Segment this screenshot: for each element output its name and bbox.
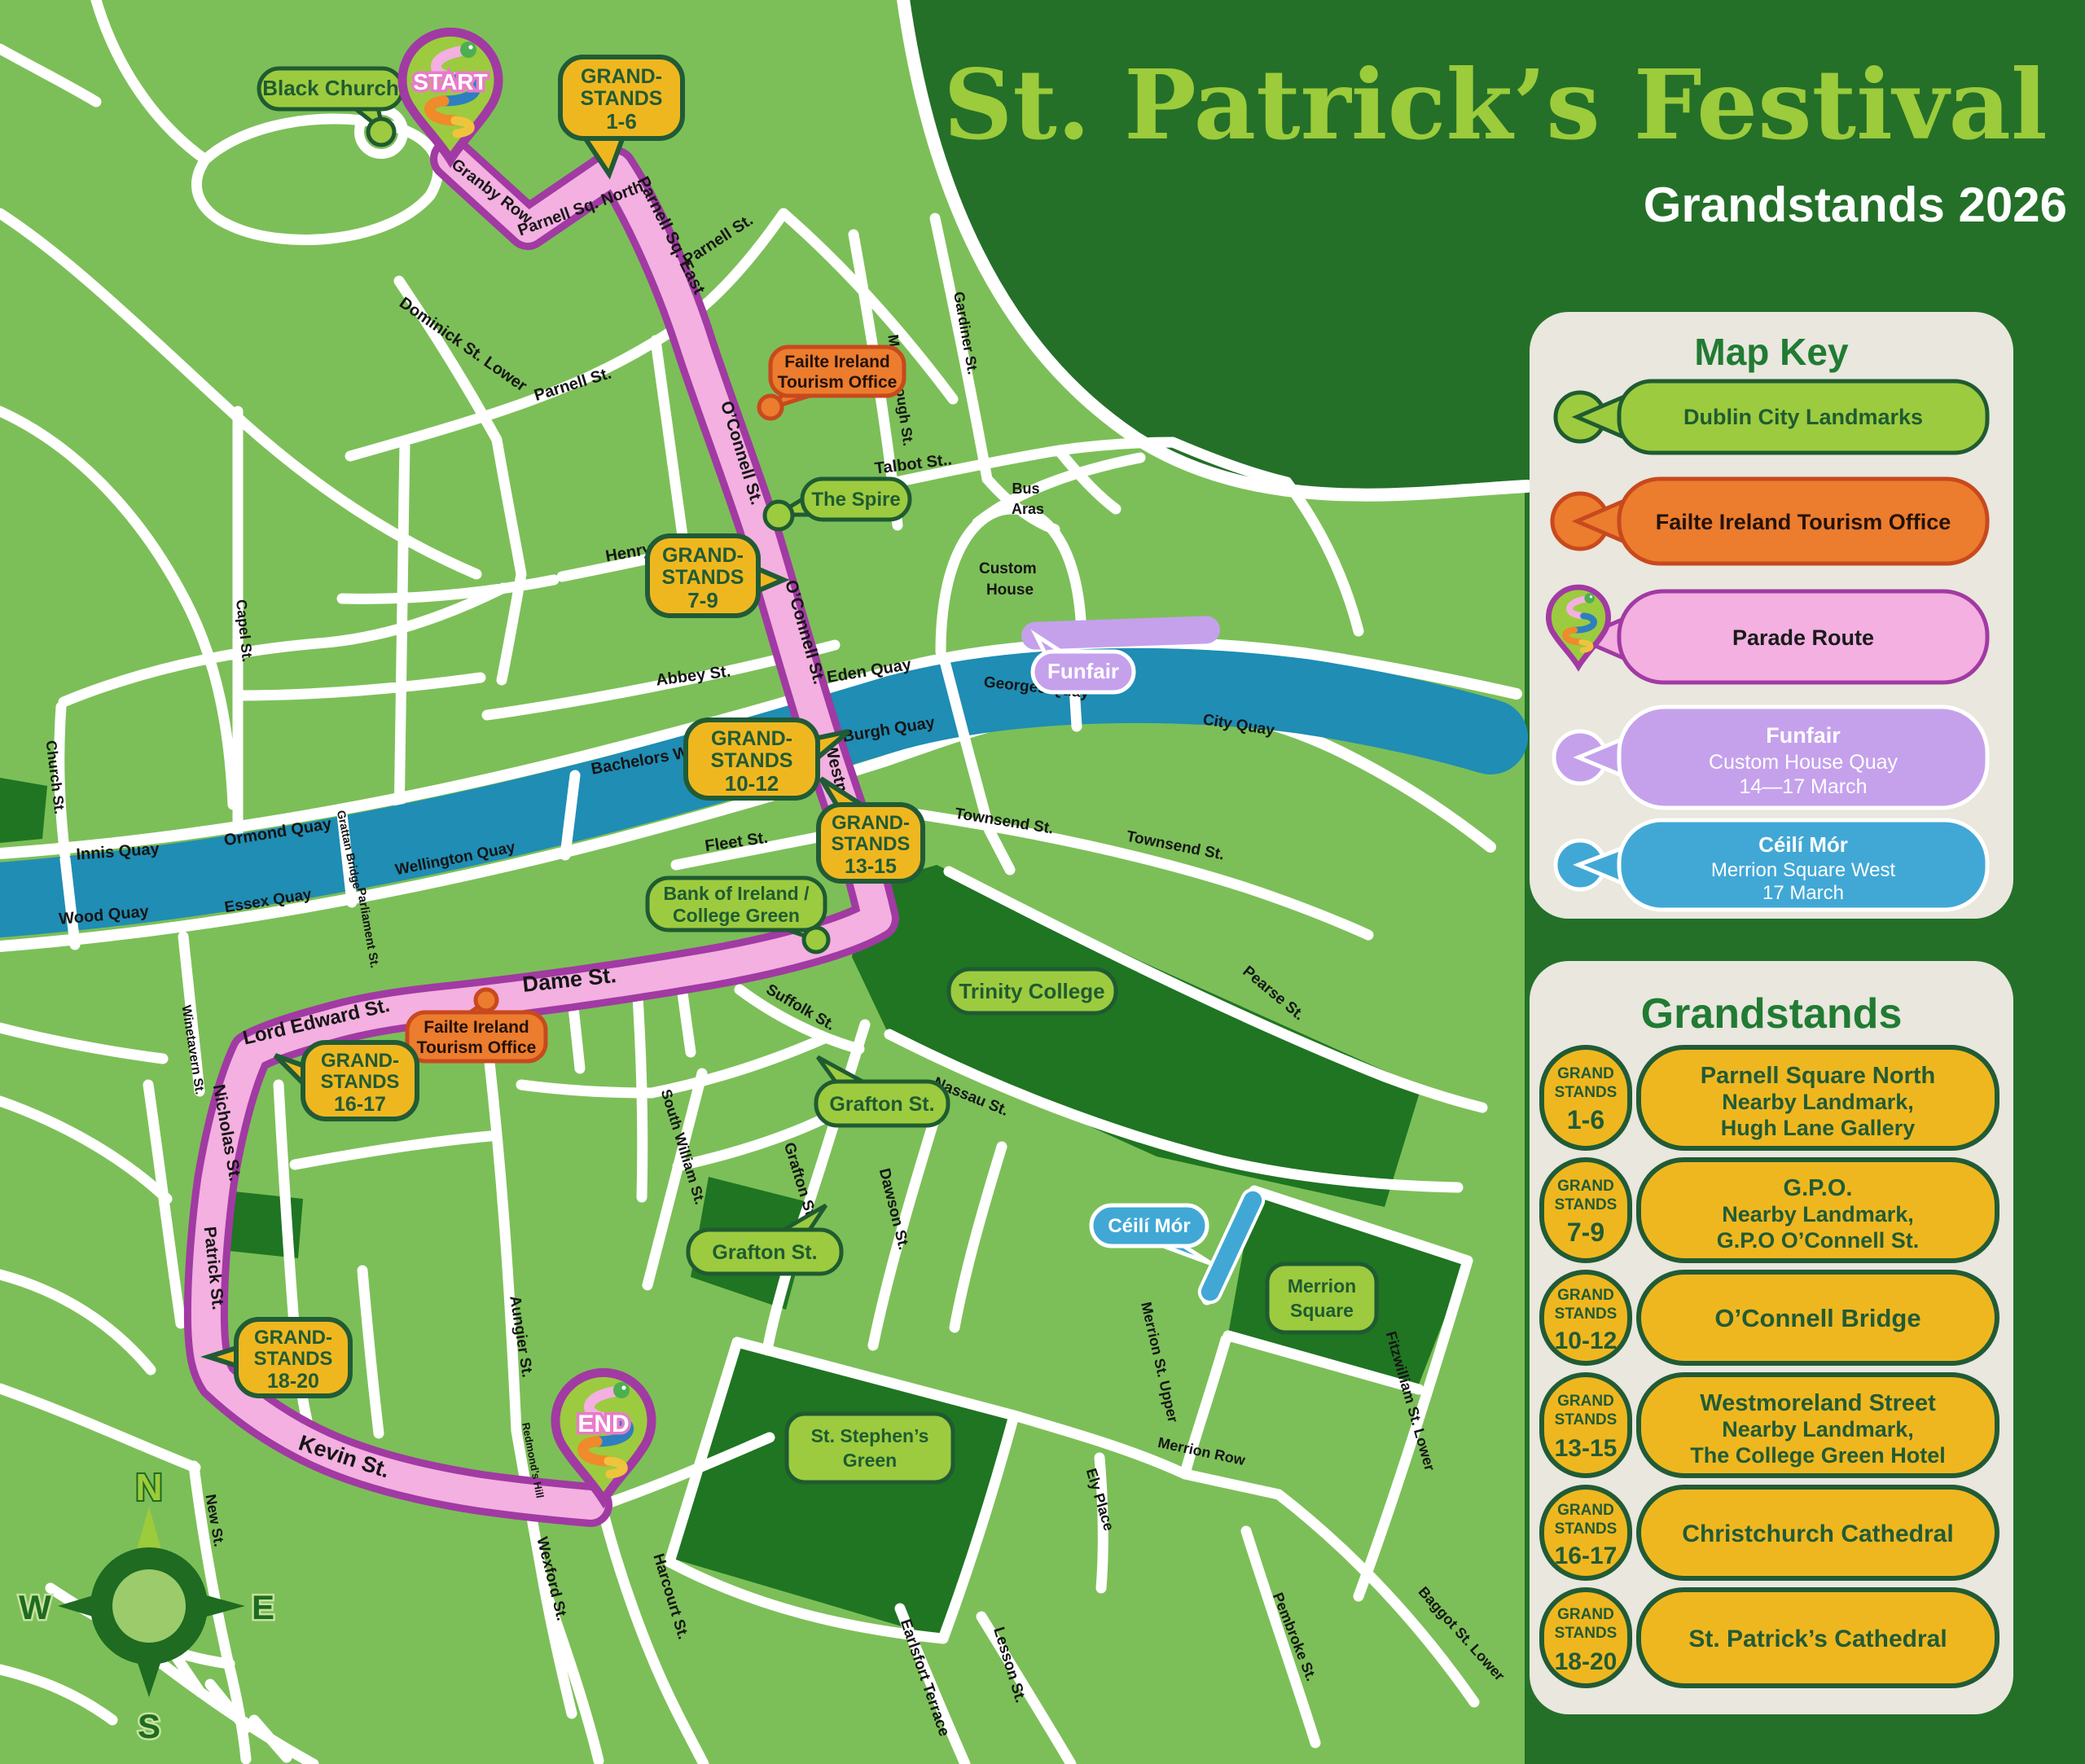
badge-word2: STANDS: [1555, 1084, 1618, 1101]
black-church-marker: [368, 119, 394, 145]
gs6-line3: 18-20: [267, 1370, 319, 1393]
row-name: St. Patrick’s Cathedral: [1688, 1626, 1947, 1652]
stephens-bubble: [787, 1414, 953, 1482]
row-line3: The College Green Hotel: [1690, 1443, 1946, 1468]
failte2-line1: Failte Ireland: [424, 1018, 529, 1037]
badge-range: 10-12: [1555, 1327, 1618, 1354]
failte1-marker: [759, 396, 782, 419]
grandstand-row-5: GRAND STANDS 16-17 Christchurch Cathedra…: [1542, 1487, 1997, 1578]
badge-range: 16-17: [1555, 1542, 1618, 1569]
badge-word2: STANDS: [1555, 1520, 1618, 1538]
ceili-label: Céilí Mór: [1108, 1215, 1190, 1237]
end-pin-label: END: [577, 1411, 629, 1437]
badge-word1: GRAND: [1557, 1502, 1614, 1519]
row-line2: Nearby Landmark,: [1722, 1090, 1914, 1114]
failte1-line1: Failte Ireland: [784, 353, 890, 371]
grandstand-row-2: GRAND STANDS 7-9 G.P.O. Nearby Landmark,…: [1542, 1160, 1997, 1261]
gs5-line2: STANDS: [321, 1071, 400, 1093]
failte1-line2: Tourism Office: [778, 373, 898, 392]
gs3-line1: GRAND-: [711, 727, 792, 750]
row-name: G.P.O.: [1784, 1175, 1853, 1201]
page-subtitle: Grandstands 2026: [1644, 178, 2067, 232]
grandstand-row-1: GRAND STANDS 1-6 Parnell Square North Ne…: [1542, 1047, 1997, 1148]
key-label: Failte Ireland Tourism Office: [1656, 510, 1951, 534]
merrion-line1: Merrion: [1288, 1275, 1356, 1297]
bus-aras-line2: Aras: [1012, 501, 1044, 517]
compass-n: N: [135, 1466, 162, 1508]
row-name: Westmoreland Street: [1700, 1390, 1936, 1416]
riverside-park: [0, 778, 47, 843]
badge-word1: GRAND: [1557, 1065, 1614, 1082]
gs1-line3: 1-6: [606, 109, 637, 134]
grafton2-label: Grafton St.: [712, 1241, 817, 1264]
gs5-line3: 16-17: [334, 1093, 386, 1116]
gs1-line1: GRAND-: [581, 65, 662, 88]
failte2-line2: Tourism Office: [417, 1038, 537, 1057]
row-name: Parnell Square North: [1701, 1063, 1935, 1089]
gs4-line1: GRAND-: [832, 812, 910, 834]
row-line2: Nearby Landmark,: [1722, 1202, 1914, 1226]
badge-word2: STANDS: [1555, 1305, 1618, 1323]
stephens-line1: St. Stephen’s: [811, 1425, 929, 1446]
badge-range: 18-20: [1555, 1648, 1618, 1675]
gs4-line2: STANDS: [832, 833, 911, 855]
funfair-label: Funfair: [1047, 659, 1119, 683]
badge-word2: STANDS: [1555, 1196, 1618, 1213]
row-line3: Hugh Lane Gallery: [1721, 1116, 1916, 1140]
grafton1-label: Grafton St.: [829, 1093, 934, 1116]
gs3-line3: 10-12: [725, 771, 779, 796]
badge-word1: GRAND: [1557, 1393, 1614, 1410]
badge-word2: STANDS: [1555, 1625, 1618, 1642]
spire-marker: [765, 502, 792, 529]
key-label: Parade Route: [1732, 625, 1874, 650]
map-key-title: Map Key: [1694, 331, 1849, 373]
gs3-line2: STANDS: [711, 749, 793, 772]
key-label: Funfair: [1766, 723, 1841, 748]
page-title: St. Patrick’s Festival: [943, 48, 2048, 161]
badge-word1: GRAND: [1557, 1606, 1614, 1623]
map-canvas: Granby Row Parnell Sq. North Parnell Sq.…: [0, 0, 2085, 1764]
poster: { "title": { "main": "St. Patrick’s Fest…: [0, 0, 2085, 1764]
row-line3: G.P.O O’Connell St.: [1717, 1228, 1920, 1253]
grandstands-panel: Grandstands GRAND STANDS 1-6 Parnell Squ…: [1530, 961, 2013, 1714]
compass-e: E: [252, 1588, 274, 1626]
compass-center: [112, 1569, 186, 1643]
custom-house-line2: House: [986, 581, 1034, 599]
row-line2: Nearby Landmark,: [1722, 1417, 1914, 1441]
key-label: Céilí Mór: [1758, 832, 1848, 857]
bank-line1: Bank of Ireland /: [664, 883, 810, 904]
failte2-marker: [476, 990, 497, 1011]
badge-range: 7-9: [1567, 1218, 1604, 1247]
merrion-line2: Square: [1290, 1300, 1354, 1321]
key-sub1: Merrion Square West: [1711, 859, 1896, 881]
badge-word1: GRAND: [1557, 1178, 1614, 1195]
map-key-panel: Map Key Dublin City Landmarks Failte Ire…: [1530, 312, 2013, 919]
key-sub1: Custom House Quay: [1709, 751, 1898, 774]
badge-range: 1-6: [1567, 1105, 1604, 1134]
gs4-line3: 13-15: [845, 855, 897, 878]
bus-aras-line1: Bus: [1012, 480, 1039, 497]
badge-word1: GRAND: [1557, 1287, 1614, 1304]
badge-word2: STANDS: [1555, 1411, 1618, 1428]
gs5-line1: GRAND-: [321, 1050, 399, 1072]
grandstands-title: Grandstands: [1641, 990, 1903, 1038]
gs1-line2: STANDS: [581, 87, 663, 110]
row-name: O’Connell Bridge: [1714, 1304, 1920, 1332]
key-sub2: 14—17 March: [1739, 775, 1867, 798]
compass-w: W: [19, 1588, 51, 1626]
spire-label: The Spire: [811, 489, 900, 511]
grandstand-row-3: GRAND STANDS 10-12 O’Connell Bridge: [1542, 1272, 1997, 1363]
gs6-line2: STANDS: [254, 1348, 333, 1370]
key-sub2: 17 March: [1762, 882, 1844, 904]
gs6-line1: GRAND-: [254, 1327, 332, 1349]
gs2-line3: 7-9: [687, 588, 718, 612]
row-name: Christchurch Cathedral: [1682, 1520, 1953, 1547]
badge-range: 13-15: [1555, 1435, 1618, 1462]
black-church-label: Black Church: [262, 76, 399, 100]
bank-line2: College Green: [673, 905, 800, 926]
trinity-label: Trinity College: [959, 979, 1104, 1003]
merrion-bubble: [1267, 1264, 1376, 1332]
compass-s: S: [138, 1707, 160, 1745]
grandstand-row-4: GRAND STANDS 13-15 Westmoreland Street N…: [1542, 1375, 1997, 1476]
gs2-line1: GRAND-: [662, 544, 744, 567]
custom-house-line1: Custom: [979, 560, 1037, 577]
key-label: Dublin City Landmarks: [1683, 405, 1923, 429]
start-pin-label: START: [413, 69, 487, 94]
gs2-line2: STANDS: [662, 566, 744, 589]
stephens-line2: Green: [843, 1450, 897, 1471]
grandstand-row-6: GRAND STANDS 18-20 St. Patrick’s Cathedr…: [1542, 1590, 1997, 1686]
